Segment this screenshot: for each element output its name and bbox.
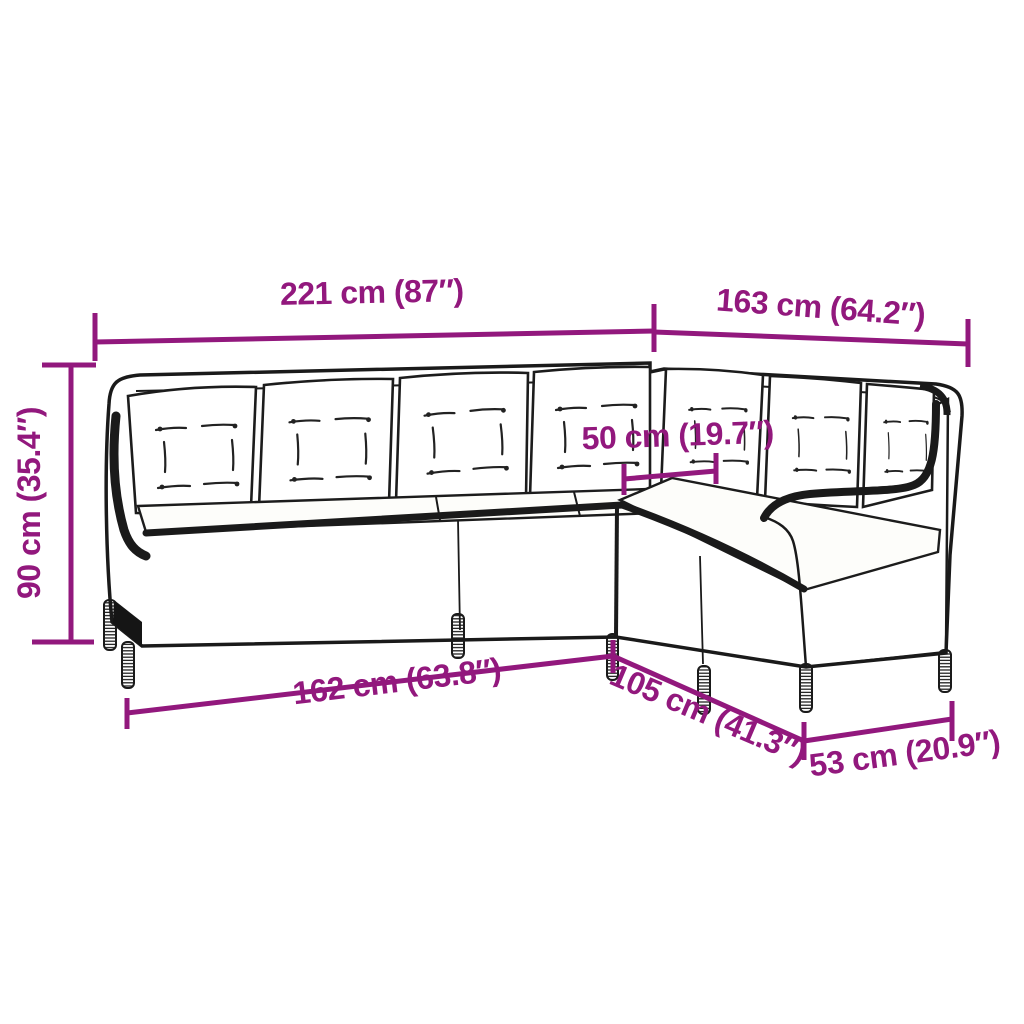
sofa-legs — [104, 600, 951, 714]
dim-label-depth-left: 162 cm (63.8″) — [291, 651, 503, 712]
dim-label-depth-right: 53 cm (20.9″) — [807, 723, 1002, 784]
front-panel-seam — [458, 520, 703, 664]
product-dimension-diagram: 221 cm (87″) 163 cm (64.2″) 90 cm (35.4″… — [0, 0, 1024, 1024]
back-pillow — [396, 373, 528, 503]
dim-width-right: 163 cm (64.2″) — [654, 281, 968, 367]
dim-width-left: 221 cm (87″) — [95, 272, 654, 361]
dim-line — [654, 332, 968, 344]
dim-label-width-right: 163 cm (64.2″) — [715, 281, 926, 332]
corner-front-edge — [616, 506, 617, 638]
dim-height: 90 cm (35.4″) — [11, 365, 96, 642]
left-base-corner — [113, 600, 142, 647]
back-pillow — [128, 387, 256, 514]
dim-label-height: 90 cm (35.4″) — [11, 407, 47, 599]
back-pillow — [259, 379, 393, 508]
sofa-leg — [122, 642, 134, 688]
sofa-leg — [800, 664, 812, 712]
dim-label-seat-depth: 50 cm (19.7″) — [581, 414, 774, 457]
sofa-leg — [452, 614, 464, 658]
dim-label-width-left: 221 cm (87″) — [280, 272, 464, 312]
sofa-illustration — [104, 363, 962, 714]
dim-line — [95, 331, 654, 342]
dim-depth-left: 162 cm (63.8″) — [127, 640, 613, 729]
diagram-svg: 221 cm (87″) 163 cm (64.2″) 90 cm (35.4″… — [0, 0, 1024, 1024]
sofa-leg — [939, 650, 951, 692]
dim-depth-right: 53 cm (20.9″) — [804, 701, 1002, 783]
